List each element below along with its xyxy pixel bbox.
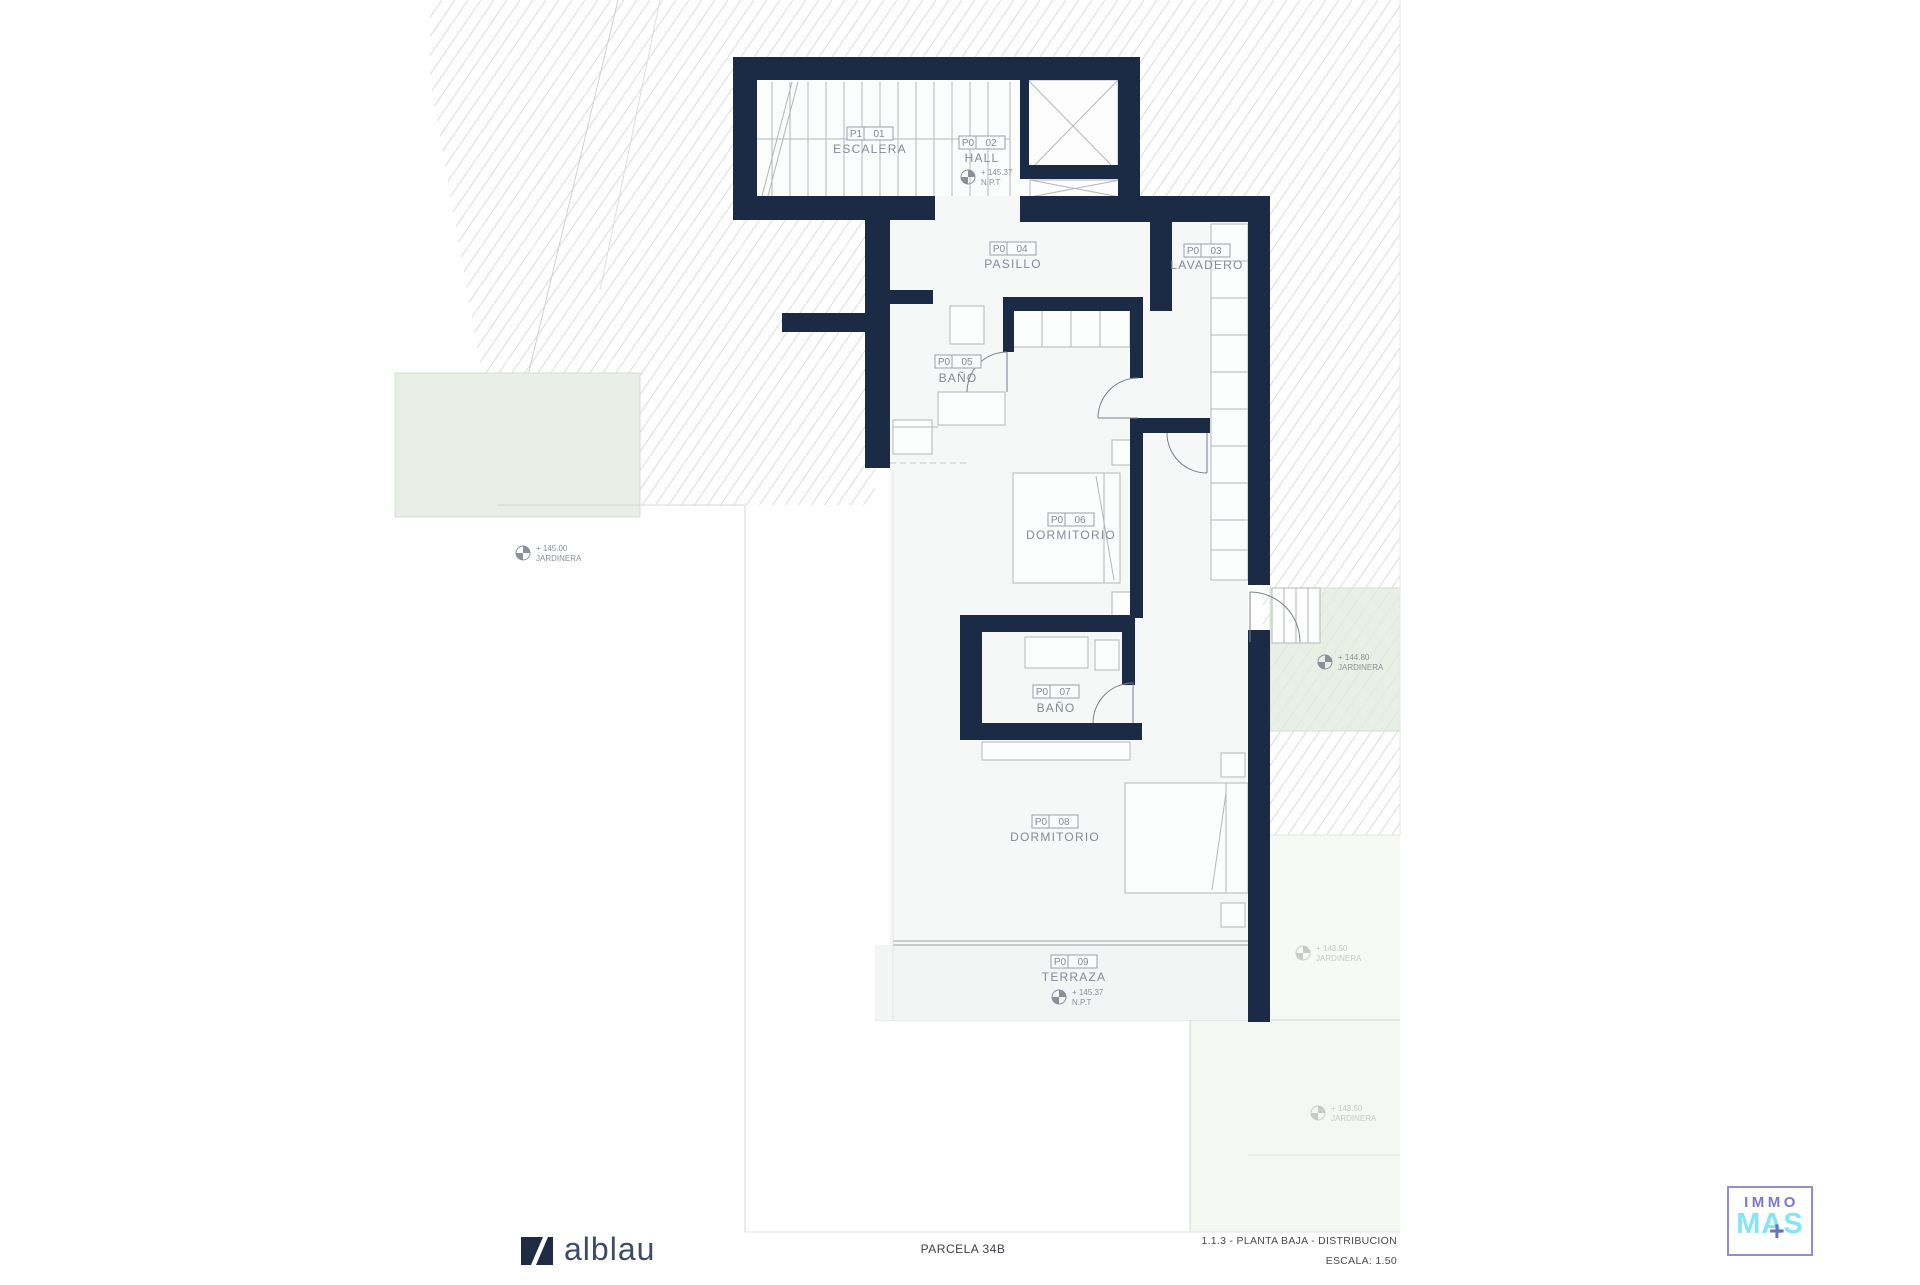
- svg-text:08: 08: [1058, 817, 1070, 828]
- svg-text:DORMITORIO: DORMITORIO: [1010, 830, 1100, 844]
- svg-text:JARDINERA: JARDINERA: [1316, 954, 1362, 963]
- wardrobe-dorm8: [982, 742, 1130, 760]
- alblau-logo-icon: [521, 1235, 555, 1265]
- elevator-shaft: [1028, 80, 1118, 172]
- svg-text:P0: P0: [962, 138, 975, 149]
- svg-text:06: 06: [1074, 515, 1086, 526]
- svg-text:N.P.T: N.P.T: [1072, 998, 1092, 1007]
- room-tag-hall: P0 02 HALL: [959, 136, 1005, 165]
- svg-text:HALL: HALL: [965, 151, 1000, 165]
- svg-text:N.P.T: N.P.T: [981, 178, 1001, 187]
- alblau-logo: alblau: [521, 1231, 655, 1268]
- svg-text:04: 04: [1016, 244, 1028, 255]
- svg-text:ESCALERA: ESCALERA: [833, 142, 907, 156]
- canvas: { "plan": { "rooms": [ {"code":"P1","num…: [0, 0, 1920, 1280]
- immomas-watermark: IMMO MAS +: [1727, 1186, 1813, 1256]
- level-marker-jardinera-left: + 145.00 JARDINERA: [516, 544, 582, 563]
- svg-text:+ 145.00: + 145.00: [536, 544, 568, 553]
- svg-text:+ 144.80: + 144.80: [1338, 653, 1370, 662]
- svg-text:JARDINERA: JARDINERA: [536, 554, 582, 563]
- svg-text:+ 143.50: + 143.50: [1316, 944, 1348, 953]
- nightstand: [1221, 753, 1245, 777]
- benchmark-icon: [516, 546, 530, 560]
- svg-text:P0: P0: [1035, 817, 1048, 828]
- benchmark-icon: [1296, 946, 1310, 960]
- svg-text:02: 02: [985, 138, 997, 149]
- svg-text:PASILLO: PASILLO: [984, 257, 1042, 271]
- benchmark-icon: [1311, 1106, 1325, 1120]
- svg-text:TERRAZA: TERRAZA: [1042, 970, 1106, 984]
- svg-text:+ 145.37: + 145.37: [981, 168, 1013, 177]
- sheet-info: 1.1.3 - PLANTA BAJA - DISTRIBUCION ESCAL…: [1097, 1235, 1397, 1267]
- svg-text:BAÑO: BAÑO: [1037, 701, 1076, 715]
- parcel-title: PARCELA 34B: [863, 1242, 1063, 1256]
- lavadero-shelves: [1211, 224, 1248, 580]
- bath7-fixtures: [1025, 637, 1119, 670]
- benchmark-icon: [961, 170, 975, 184]
- sheet-title: 1.1.3 - PLANTA BAJA - DISTRIBUCION: [1097, 1235, 1397, 1247]
- benchmark-icon: [1318, 655, 1332, 669]
- svg-text:P0: P0: [1054, 957, 1067, 968]
- room-tag-terraza: P0 09 TERRAZA: [1042, 955, 1106, 984]
- vent-grille: [1030, 180, 1120, 197]
- svg-text:07: 07: [1059, 687, 1071, 698]
- sheet-scale: ESCALA: 1.50: [1097, 1255, 1397, 1267]
- svg-text:+ 143.50: + 143.50: [1331, 1104, 1363, 1113]
- nightstand: [1221, 903, 1245, 927]
- svg-text:P0: P0: [993, 244, 1006, 255]
- jardinera-bottom-right-a: [1263, 835, 1400, 1020]
- svg-text:P1: P1: [850, 129, 863, 140]
- svg-text:BAÑO: BAÑO: [939, 371, 978, 385]
- immomas-plus-icon: +: [1769, 1216, 1785, 1247]
- closet-row-dorm6: [1012, 308, 1130, 347]
- svg-text:DORMITORIO: DORMITORIO: [1026, 528, 1116, 542]
- svg-text:09: 09: [1077, 957, 1089, 968]
- svg-text:P0: P0: [938, 357, 951, 368]
- svg-text:P0: P0: [1187, 246, 1200, 257]
- svg-text:01: 01: [873, 129, 885, 140]
- garden-steps: [1272, 588, 1320, 643]
- svg-text:JARDINERA: JARDINERA: [1338, 663, 1384, 672]
- svg-text:P0: P0: [1036, 687, 1049, 698]
- benchmark-icon: [1052, 990, 1066, 1004]
- svg-text:+ 145.37: + 145.37: [1072, 988, 1104, 997]
- svg-text:P0: P0: [1051, 515, 1064, 526]
- jardinera-left: [395, 373, 640, 517]
- jardinera-bottom-right-b: [1190, 1020, 1400, 1232]
- svg-text:05: 05: [961, 357, 973, 368]
- svg-text:LAVADERO: LAVADERO: [1170, 258, 1243, 272]
- svg-text:03: 03: [1210, 246, 1222, 257]
- floor-plan: P1 01 ESCALERA P0 02 HALL P0 03 LAVADERO…: [0, 0, 1920, 1280]
- alblau-logo-text: alblau: [564, 1231, 655, 1268]
- room-tag-pasillo: P0 04 PASILLO: [984, 242, 1042, 271]
- svg-text:JARDINERA: JARDINERA: [1331, 1114, 1377, 1123]
